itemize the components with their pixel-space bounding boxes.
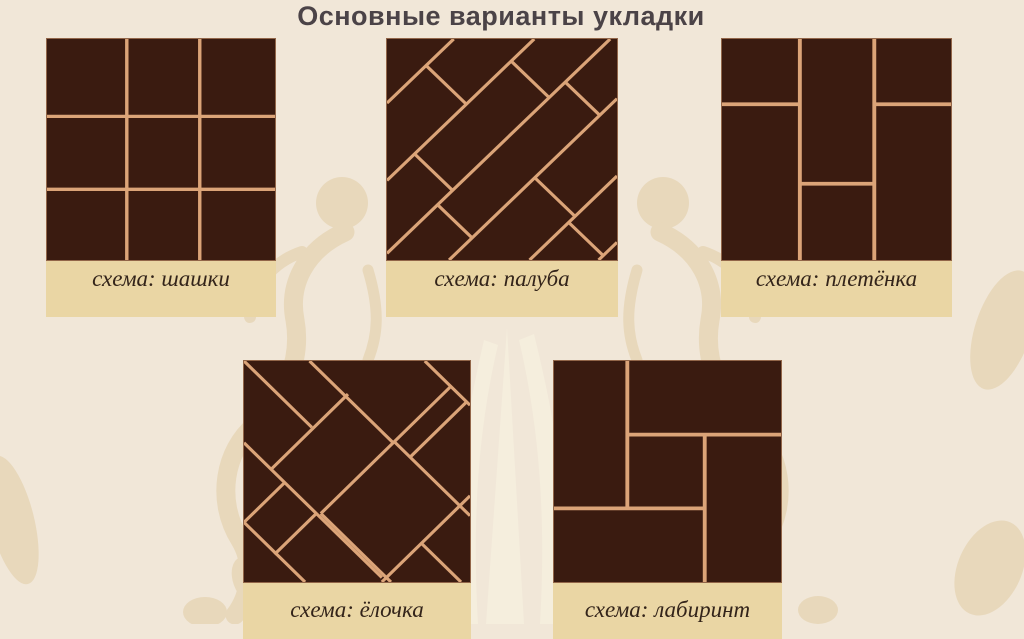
pattern-label: схема: лабиринт [585, 597, 750, 622]
page-title: Основные варианты укладки [0, 1, 1002, 32]
pattern-label: схема: палуба [434, 266, 569, 291]
pattern-diagram-pletenka [721, 38, 952, 261]
tile-pattern-svg-weave [722, 39, 951, 260]
pattern-diagram-yolochka [243, 360, 471, 583]
pattern-card-yolochka: схема: ёлочка [243, 360, 471, 639]
pattern-card-shashki: схема: шашки [46, 38, 276, 317]
tile-pattern-svg-herringbone [244, 361, 470, 582]
tile-pattern-svg-deck [387, 39, 617, 260]
pattern-label: схема: плетёнка [756, 266, 917, 291]
pattern-label: схема: шашки [92, 266, 230, 291]
pattern-card-paluba: схема: палуба [386, 38, 618, 317]
pattern-label-band: схема: палуба [386, 261, 618, 317]
tile-pattern-svg-grid [47, 39, 275, 260]
pattern-label: схема: ёлочка [290, 597, 423, 622]
tile-pattern-svg-pinwheel [554, 361, 781, 582]
pattern-label-band: схема: плетёнка [721, 261, 952, 317]
pattern-label-band: схема: ёлочка [243, 583, 471, 639]
pattern-diagram-shashki [46, 38, 276, 261]
pattern-card-labirint: схема: лабиринт [553, 360, 782, 639]
pattern-diagram-paluba [386, 38, 618, 261]
pattern-label-band: схема: шашки [46, 261, 276, 317]
pattern-card-pletenka: схема: плетёнка [721, 38, 952, 317]
pattern-label-band: схема: лабиринт [553, 583, 782, 639]
pattern-diagram-labirint [553, 360, 782, 583]
